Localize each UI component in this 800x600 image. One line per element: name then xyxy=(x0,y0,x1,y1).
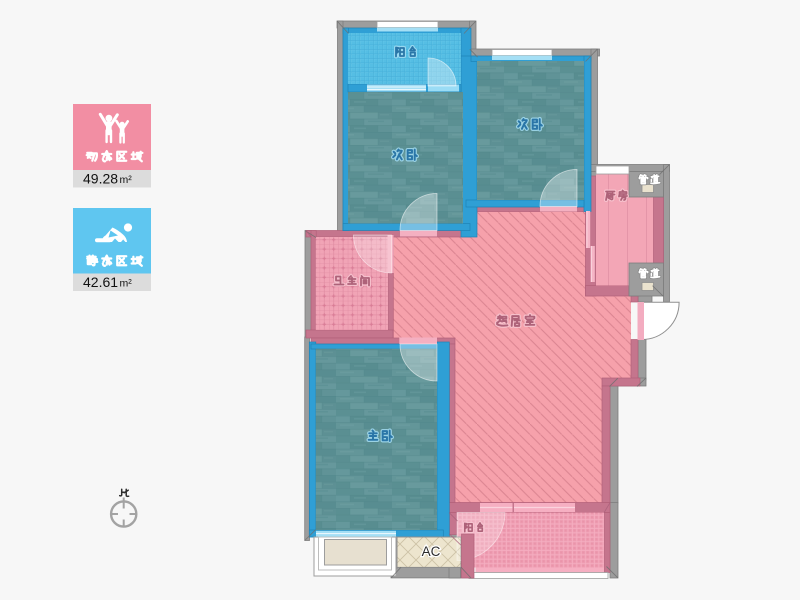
svg-text:AC: AC xyxy=(422,544,441,559)
svg-text:m²: m² xyxy=(120,174,133,186)
svg-text:m²: m² xyxy=(120,278,133,290)
svg-text:49.28: 49.28 xyxy=(83,171,118,187)
svg-text:42.61: 42.61 xyxy=(83,274,118,290)
